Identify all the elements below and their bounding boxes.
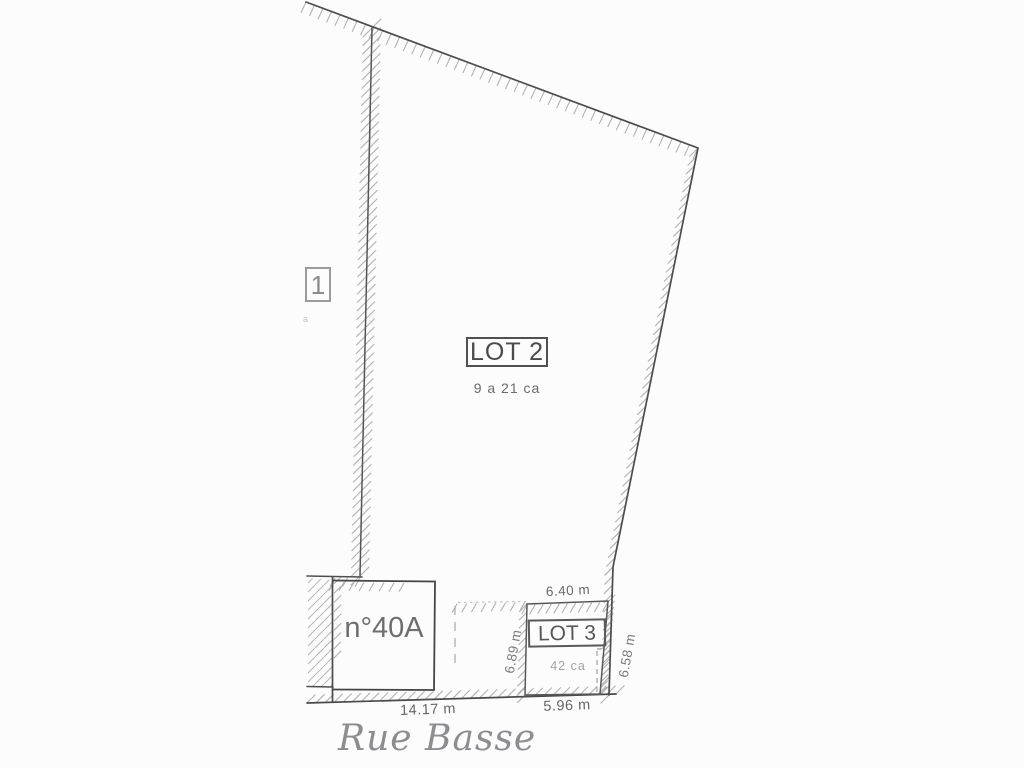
- street-name-label: Rue Basse: [338, 718, 528, 759]
- building-number-label: n°40A: [342, 612, 426, 645]
- west-strip-bottom-line: [307, 687, 333, 688]
- cadastral-plan: 1 a LOT 2 9 a 21 ca n°40A LOT 3 42 ca 6.…: [0, 0, 1024, 768]
- dimension-street-frontage: 14.17 m: [394, 701, 463, 719]
- hatched-strip-west: [308, 578, 332, 687]
- lot2-area-label: 9 a 21 ca: [466, 380, 548, 396]
- lot3-area-label: 42 ca: [541, 659, 595, 673]
- lot1-lot2-divider: [360, 28, 372, 576]
- lot1-number-box: 1: [305, 267, 331, 302]
- dimension-lot3-south: 5.96 m: [536, 697, 599, 715]
- lot2-label-box: LOT 2: [466, 337, 548, 367]
- lot3-parcel-outline: [525, 601, 608, 695]
- lot1-area-fragment: a: [303, 314, 308, 324]
- lot3-label-box: LOT 3: [528, 618, 606, 647]
- west-boundary-segment: [307, 576, 362, 577]
- dotted-line-horizontal: [458, 602, 526, 603]
